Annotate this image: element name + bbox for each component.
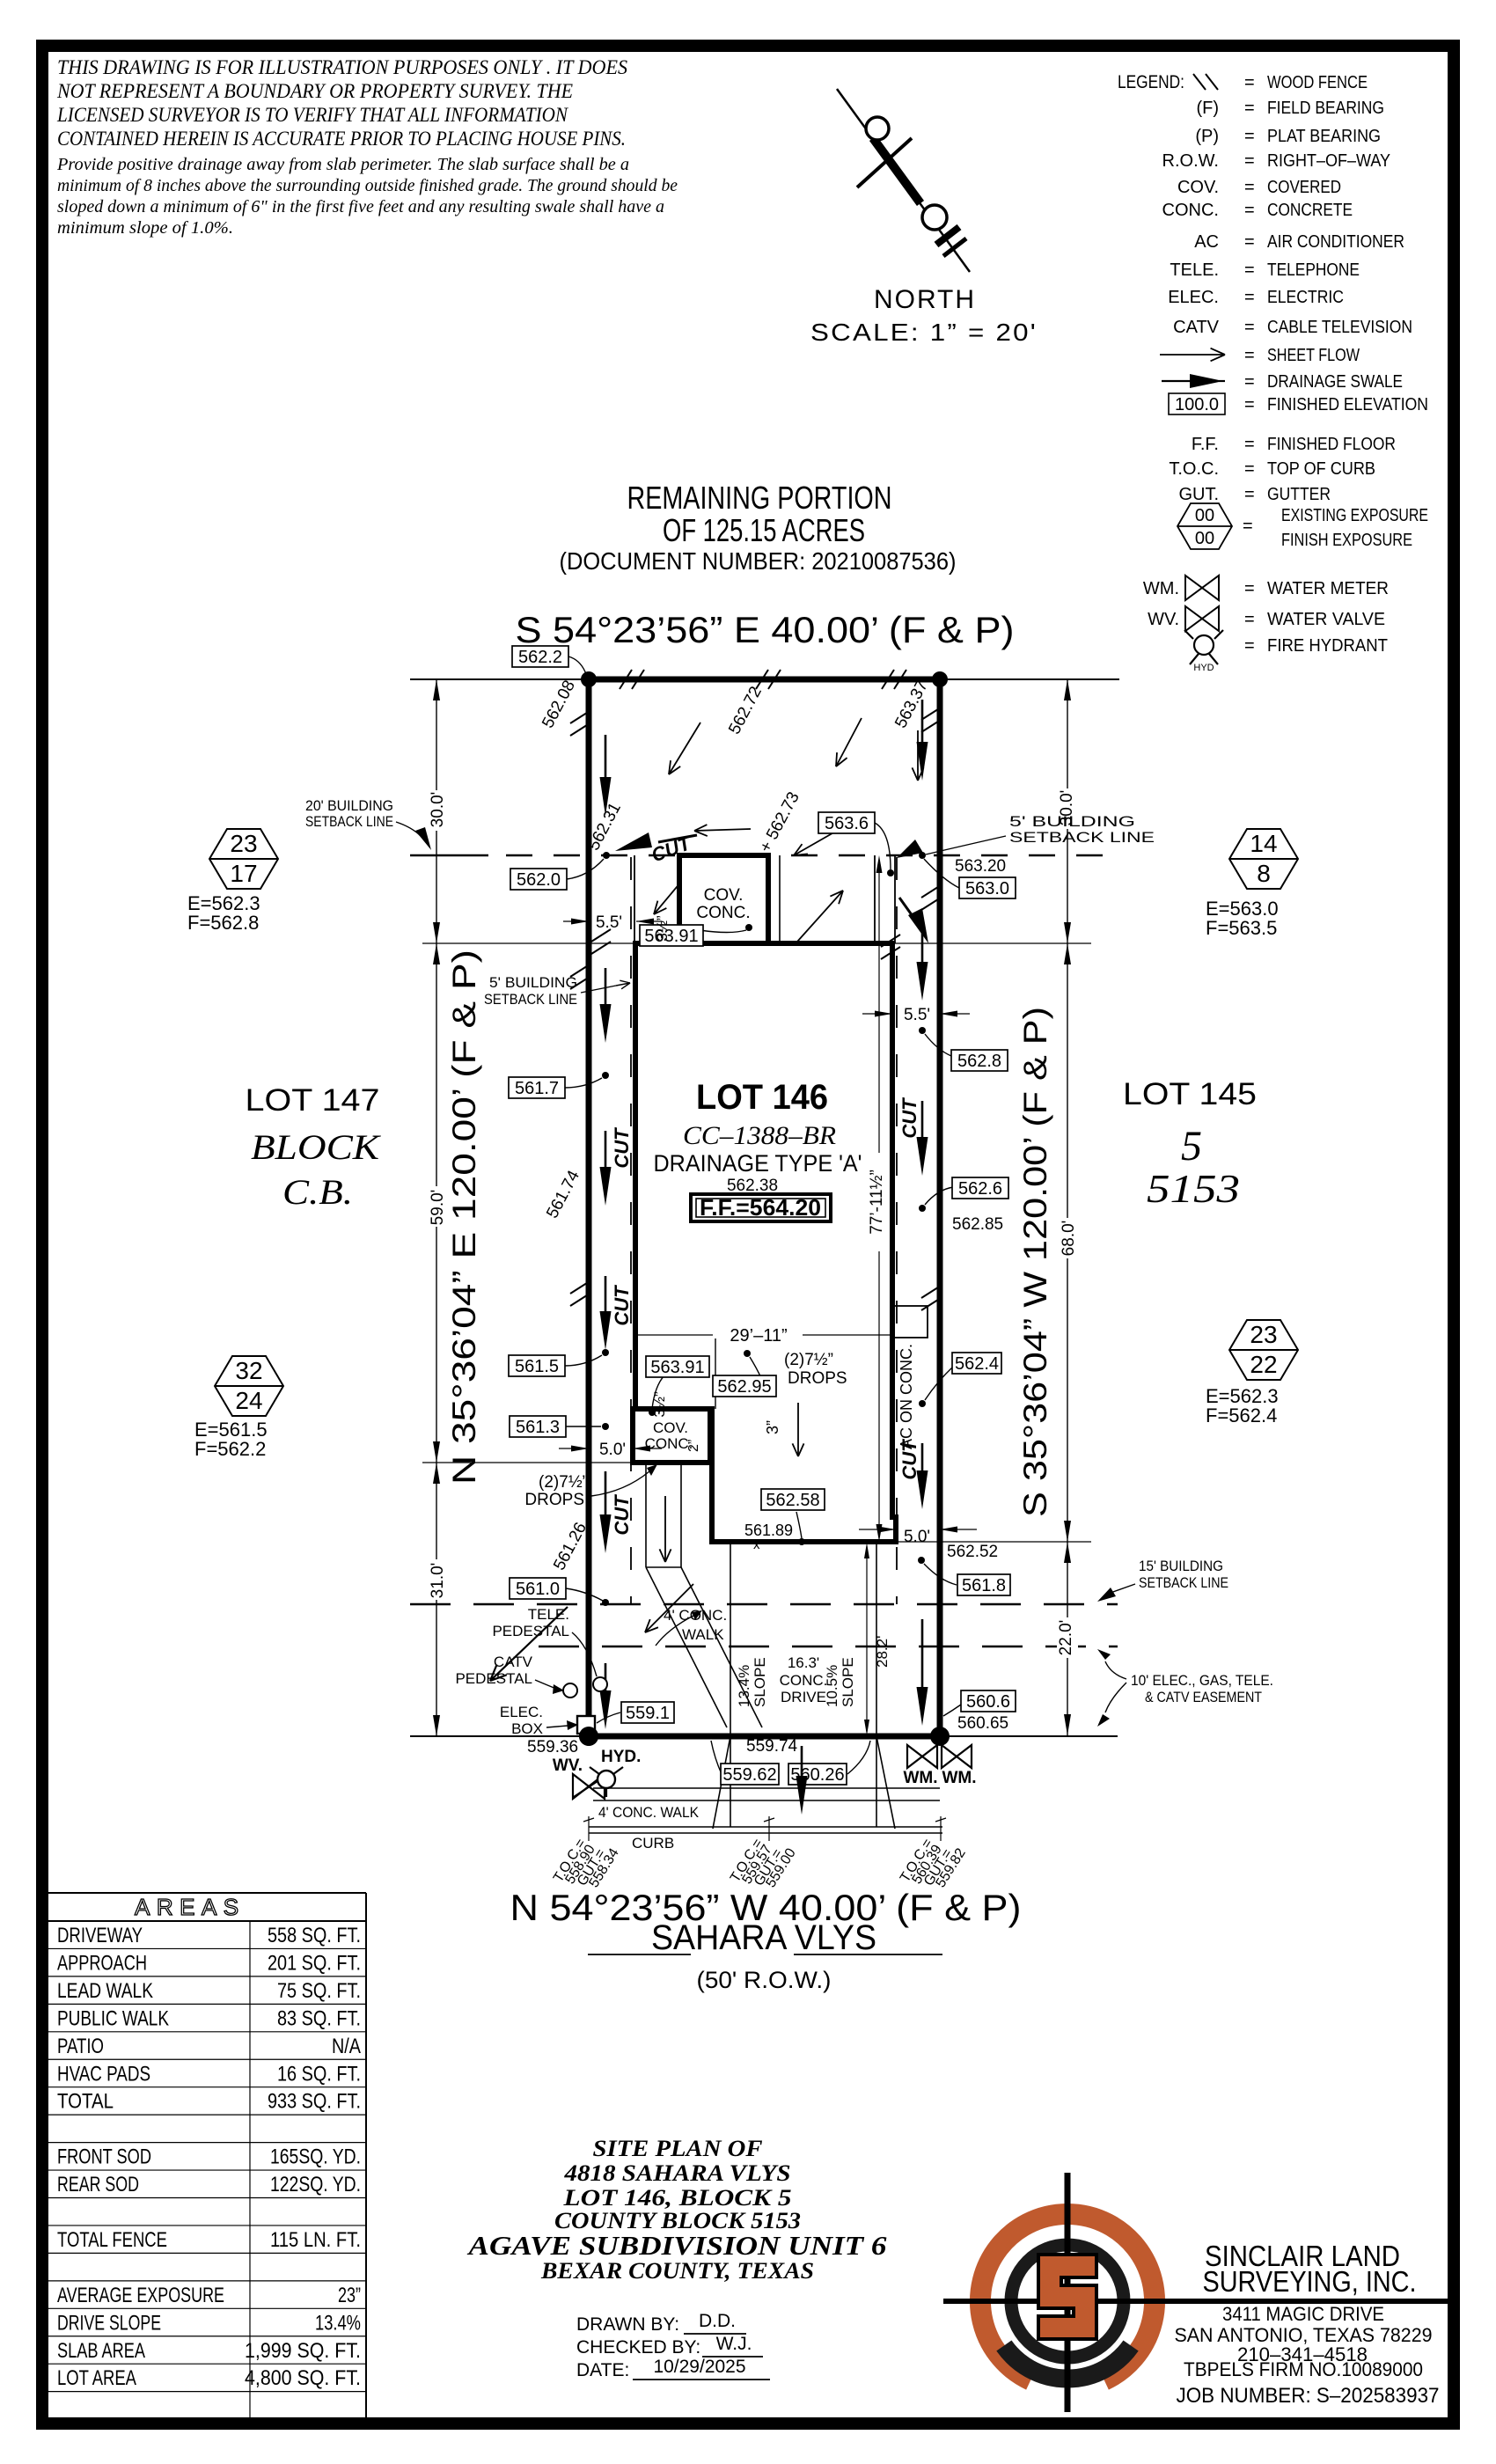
svg-text:10' ELEC., GAS, TELE.: 10' ELEC., GAS, TELE. [1131,1672,1273,1689]
svg-text:(F): (F) [1196,99,1219,118]
svg-text:NORTH: NORTH [874,285,976,314]
svg-text:23: 23 [230,830,257,857]
svg-text:FINISHED FLOOR: FINISHED FLOOR [1267,435,1396,454]
svg-text:CUT: CUT [611,1494,633,1536]
svg-text:563.91: 563.91 [644,927,698,946]
svg-text:561.5: 561.5 [515,1357,559,1376]
svg-text:10/29/2025: 10/29/2025 [653,2357,745,2377]
svg-text:F=563.5: F=563.5 [1206,917,1277,939]
svg-text:2”: 2” [686,1440,701,1452]
svg-text:TELE.: TELE. [528,1606,569,1623]
svg-text:5153: 5153 [1147,1167,1240,1211]
svg-text:REMAINING PORTION: REMAINING PORTION [627,480,892,516]
svg-text:FINISHED ELEVATION: FINISHED ELEVATION [1267,395,1428,414]
svg-text:sloped down a minimum of 6" in: sloped down a minimum of 6" in the first… [57,197,664,216]
svg-text:83 SQ. FT.: 83 SQ. FT. [277,2006,361,2030]
svg-text:SAHARA VLYS: SAHARA VLYS [651,1918,876,1957]
svg-text:SLAB AREA: SLAB AREA [57,2339,145,2363]
svg-text:D.D.: D.D. [699,2311,736,2331]
svg-text:ELECTRIC: ELECTRIC [1267,288,1344,307]
svg-text:PEDESTAL: PEDESTAL [492,1623,569,1639]
svg-text:SCALE: 1” = 20': SCALE: 1” = 20' [810,319,1038,346]
svg-text:SETBACK LINE: SETBACK LINE [1139,1574,1228,1591]
svg-text:=: = [1244,459,1255,479]
svg-text:59.0': 59.0' [429,1190,447,1226]
svg-text:13.4%: 13.4% [315,2311,361,2335]
svg-text:561.8: 561.8 [962,1576,1006,1595]
svg-text:WV.: WV. [553,1756,583,1775]
svg-text:(2)7½”: (2)7½” [784,1351,833,1369]
svg-text:561.3: 561.3 [516,1418,560,1437]
svg-text:TOP OF CURB: TOP OF CURB [1267,459,1375,479]
svg-text:10.5%: 10.5% [824,1665,840,1707]
svg-text:GUT.: GUT. [1178,485,1219,504]
svg-text:AC ON CONC.: AC ON CONC. [898,1344,915,1449]
svg-text:3½”: 3½” [654,915,671,942]
svg-text:5.0': 5.0' [599,1441,626,1459]
svg-text:558 SQ. FT.: 558 SQ. FT. [268,1924,361,1947]
svg-text:562.38: 562.38 [727,1177,778,1195]
svg-text:4,800 SQ. FT.: 4,800 SQ. FT. [245,2366,361,2390]
svg-text:4' CONC. WALK: 4' CONC. WALK [598,1804,700,1821]
svg-text:minimum slope of 1.0%.: minimum slope of 1.0%. [57,218,233,238]
svg-text:=: = [1244,610,1255,629]
svg-text:23”: 23” [338,2284,361,2307]
svg-text:561.89: 561.89 [744,1522,793,1539]
svg-text:BOX: BOX [511,1720,543,1737]
svg-text:DATE:: DATE: [576,2360,629,2380]
svg-text:1,999 SQ. FT.: 1,999 SQ. FT. [245,2339,361,2363]
svg-text:RIGHT–OF–WAY: RIGHT–OF–WAY [1267,151,1390,171]
svg-text:F.F.=564.20: F.F.=564.20 [700,1194,821,1221]
svg-text:F.F.: F.F. [1192,435,1219,454]
svg-text:=: = [1244,485,1255,504]
svg-text:=: = [1244,127,1255,146]
svg-text:115 LN. FT.: 115 LN. FT. [270,2228,361,2252]
svg-text:22.0': 22.0' [1057,1620,1075,1656]
svg-text:562.95: 562.95 [717,1377,771,1397]
svg-text:=: = [1244,178,1255,197]
svg-text:5.0': 5.0' [904,1528,930,1546]
svg-text:THIS DRAWING IS FOR ILLUSTRATI: THIS DRAWING IS FOR ILLUSTRATION PURPOSE… [57,56,627,78]
svg-text:CUT: CUT [898,1097,920,1139]
svg-text:LICENSED SURVEYOR IS TO VERIFY: LICENSED SURVEYOR IS TO VERIFY THAT ALL … [56,104,568,126]
svg-text:562.85: 562.85 [952,1215,1003,1234]
svg-text:SHEET FLOW: SHEET FLOW [1267,346,1360,365]
svg-text:C.B.: C.B. [282,1172,353,1212]
svg-text:FRONT SOD: FRONT SOD [57,2145,151,2169]
svg-text:201 SQ. FT.: 201 SQ. FT. [268,1951,361,1975]
svg-text:WATER METER: WATER METER [1267,579,1389,598]
svg-text:559.36: 559.36 [527,1738,578,1756]
svg-text:3411 MAGIC DRIVE: 3411 MAGIC DRIVE [1222,2303,1384,2325]
svg-text:DRIVE SLOPE: DRIVE SLOPE [57,2311,161,2335]
svg-text:563.20: 563.20 [955,857,1006,876]
svg-text:5' BUILDING: 5' BUILDING [1009,813,1135,830]
svg-text:LEAD WALK: LEAD WALK [57,1979,153,2003]
svg-text:DRIVE: DRIVE [781,1689,826,1705]
svg-text:TOTAL: TOTAL [57,2090,114,2114]
svg-text:=: = [1244,435,1255,454]
svg-text:S 54°23’56” E 40.00’ (F & P): S 54°23’56” E 40.00’ (F & P) [516,609,1015,650]
svg-text:LOT AREA: LOT AREA [57,2366,136,2390]
svg-text:=: = [1244,372,1255,392]
svg-text:PUBLIC WALK: PUBLIC WALK [57,2006,169,2030]
svg-text:NOT REPRESENT A BOUNDARY OR PR: NOT REPRESENT A BOUNDARY OR PROPERTY SUR… [56,80,573,102]
svg-text:DRAWN BY:: DRAWN BY: [576,2314,679,2335]
svg-text:562.58: 562.58 [766,1491,819,1510]
svg-text:LOT 145: LOT 145 [1123,1077,1257,1111]
svg-text:SITE PLAN OF: SITE PLAN OF [593,2136,763,2161]
svg-text:16.3': 16.3' [788,1654,819,1671]
svg-text:DRIVEWAY: DRIVEWAY [57,1924,143,1947]
svg-text:=: = [1244,318,1255,337]
svg-text:=: = [1244,346,1255,365]
svg-text:SURVEYING, INC.: SURVEYING, INC. [1203,2265,1417,2298]
svg-text:AVERAGE EXPOSURE: AVERAGE EXPOSURE [57,2284,224,2307]
svg-text:560.6: 560.6 [966,1692,1010,1712]
svg-text:CONC.: CONC. [1162,201,1219,220]
svg-text:WALK: WALK [682,1626,724,1643]
svg-text:77’‑11½”: 77’‑11½” [868,1170,886,1235]
svg-text:FINISH EXPOSURE: FINISH EXPOSURE [1281,531,1412,550]
svg-text:F=562.8: F=562.8 [187,912,259,934]
svg-text:LOT 146, BLOCK 5: LOT 146, BLOCK 5 [562,2185,791,2211]
svg-text:JOB NUMBER: S–202583937: JOB NUMBER: S–202583937 [1177,2384,1440,2408]
svg-text:BLOCK: BLOCK [251,1127,382,1167]
svg-text:20' BUILDING: 20' BUILDING [305,797,393,814]
svg-text:562.4: 562.4 [955,1354,999,1374]
svg-text:APPROACH: APPROACH [57,1951,147,1975]
svg-text:22: 22 [1250,1351,1277,1378]
svg-text:5' BUILDING: 5' BUILDING [489,974,577,991]
svg-text:SETBACK LINE: SETBACK LINE [484,991,577,1008]
svg-text:559.74: 559.74 [746,1737,798,1756]
svg-text:75 SQ. FT.: 75 SQ. FT. [277,1979,361,2003]
svg-text:BEXAR COUNTY, TEXAS: BEXAR COUNTY, TEXAS [540,2258,814,2284]
svg-text:=: = [1244,636,1255,656]
svg-text:562.2: 562.2 [518,648,562,667]
svg-text:8: 8 [1257,860,1271,887]
svg-text:23: 23 [1250,1321,1277,1348]
svg-text:CONC.: CONC. [780,1672,828,1689]
svg-text:=: = [1244,232,1255,252]
svg-text:28.2': 28.2' [874,1636,891,1668]
svg-text:=: = [1244,73,1255,92]
svg-text:5: 5 [1181,1123,1202,1170]
svg-text:3”: 3” [764,1420,781,1434]
svg-text:LOT 146: LOT 146 [696,1078,828,1117]
svg-text:16 SQ. FT.: 16 SQ. FT. [277,2062,361,2086]
svg-text:562.6: 562.6 [958,1179,1002,1199]
svg-text:DROPS: DROPS [788,1369,847,1388]
svg-text:563.0: 563.0 [965,879,1009,898]
svg-text:CURB: CURB [632,1835,674,1852]
svg-text:=: = [1244,201,1255,220]
svg-text:TOTAL FENCE: TOTAL FENCE [57,2228,167,2252]
svg-text:SLOPE: SLOPE [840,1657,856,1707]
svg-text:563.91: 563.91 [650,1358,704,1377]
svg-text:CABLE TELEVISION: CABLE TELEVISION [1267,318,1412,337]
svg-text:13.4%: 13.4% [736,1665,752,1707]
svg-text:31.0': 31.0' [429,1563,447,1599]
svg-text:HYD.: HYD. [601,1748,641,1766]
svg-text:ELEC.: ELEC. [500,1704,543,1720]
svg-text:FIELD BEARING: FIELD BEARING [1267,99,1384,118]
svg-text:29’–11”: 29’–11” [730,1326,787,1346]
svg-text:R.O.W.: R.O.W. [1162,151,1219,171]
svg-text:=: = [1244,288,1255,307]
svg-text:14: 14 [1250,830,1277,857]
svg-text:REAR SOD: REAR SOD [57,2173,139,2196]
svg-text:COV.: COV. [653,1419,688,1436]
svg-text:AC: AC [1194,232,1219,252]
svg-text:AREAS: AREAS [135,1894,246,1920]
svg-text:15' BUILDING: 15' BUILDING [1139,1558,1223,1574]
svg-text:DRAINAGE SWALE: DRAINAGE SWALE [1267,372,1403,392]
svg-text:F=562.4: F=562.4 [1206,1404,1277,1426]
svg-text:OF 125.15 ACRES: OF 125.15 ACRES [663,512,865,548]
svg-text:TELE.: TELE. [1170,260,1219,280]
svg-text:WM.: WM. [1143,579,1179,598]
svg-text:30.0': 30.0' [429,792,447,828]
svg-text:& CATV EASEMENT: & CATV EASEMENT [1145,1689,1262,1705]
svg-text:PLAT BEARING: PLAT BEARING [1267,127,1381,146]
svg-text:=: = [1244,395,1255,414]
svg-text:F=562.2: F=562.2 [194,1438,266,1460]
svg-text:HVAC PADS: HVAC PADS [57,2062,150,2086]
svg-text:COV.: COV. [704,886,744,905]
svg-text:W.J.: W.J. [716,2334,752,2354]
svg-text:CONC.: CONC. [696,904,750,922]
svg-text:ELEC.: ELEC. [1168,288,1219,307]
svg-text:EXISTING EXPOSURE: EXISTING EXPOSURE [1281,506,1428,525]
svg-text:SLOPE: SLOPE [752,1657,768,1707]
svg-text:S 35°36’04” W 120.00’ (F &: S 35°36’04” W 120.00’ (F & P) [1017,1007,1053,1517]
svg-text:AIR CONDITIONER: AIR CONDITIONER [1267,232,1404,252]
svg-text:SETBACK LINE: SETBACK LINE [1009,829,1155,846]
svg-text:TBPELS FIRM NO.10089000: TBPELS FIRM NO.10089000 [1184,2358,1423,2380]
svg-text:AGAVE SUBDIVISION UNIT 6: AGAVE SUBDIVISION UNIT 6 [466,2230,887,2261]
svg-text:FIRE HYDRANT: FIRE HYDRANT [1267,636,1388,656]
svg-text:N 35°36’04” E 120.00’ (F &: N 35°36’04” E 120.00’ (F & P) [446,950,482,1485]
svg-text:PATIO: PATIO [57,2035,104,2058]
svg-text:WATER VALVE: WATER VALVE [1267,610,1385,629]
svg-text:5.5': 5.5' [904,1006,930,1024]
svg-text:17: 17 [230,860,257,887]
svg-text:TELEPHONE: TELEPHONE [1267,260,1360,280]
svg-text:=: = [1244,260,1255,280]
svg-text:LEGEND:: LEGEND: [1118,72,1184,92]
svg-text:=: = [1244,151,1255,171]
svg-text:00: 00 [1195,529,1214,548]
svg-text:WV.: WV. [1148,610,1179,629]
svg-text:562.8: 562.8 [957,1052,1001,1071]
svg-text:CATV: CATV [1173,318,1220,337]
svg-text:WM.: WM. [903,1769,937,1787]
svg-text:559.62: 559.62 [722,1765,776,1785]
svg-text:x: x [753,1537,760,1552]
svg-text:=: = [1244,579,1255,598]
svg-text:DROPS: DROPS [524,1491,584,1509]
svg-text:562.52: 562.52 [947,1543,998,1561]
svg-text:165SQ. YD.: 165SQ. YD. [270,2145,361,2169]
svg-text:WM.: WM. [942,1769,976,1787]
svg-text:CONCRETE: CONCRETE [1267,201,1353,220]
svg-text:CHECKED BY:: CHECKED BY: [576,2337,700,2358]
svg-text:Provide positive drainage away: Provide positive drainage away from slab… [56,155,629,174]
svg-text:(DOCUMENT NUMBER: 20210087536): (DOCUMENT NUMBER: 20210087536) [560,547,957,575]
svg-text:24: 24 [235,1387,262,1414]
svg-text:562.0: 562.0 [517,870,561,890]
svg-text:(P): (P) [1195,127,1219,146]
svg-text:CATV: CATV [494,1654,533,1670]
svg-text:LOT 147: LOT 147 [246,1083,380,1118]
svg-text:SETBACK LINE: SETBACK LINE [305,813,393,830]
svg-text:minimum of 8 inches above the: minimum of 8 inches above the surroundin… [57,176,678,195]
svg-text:559.1: 559.1 [626,1704,670,1723]
svg-text:563.6: 563.6 [825,814,869,833]
svg-text:00: 00 [1195,506,1214,525]
svg-text:560.65: 560.65 [957,1714,1008,1733]
svg-text:68.0': 68.0' [1060,1221,1078,1257]
svg-text:GUTTER: GUTTER [1267,485,1331,504]
svg-text:4818 SAHARA VLYS: 4818 SAHARA VLYS [563,2160,790,2186]
svg-text:100.0: 100.0 [1175,395,1219,414]
svg-text:HYD: HYD [1193,663,1214,673]
svg-text:CC–1388–BR: CC–1388–BR [683,1121,836,1150]
svg-text:COVERED: COVERED [1267,178,1341,197]
svg-text:(50' R.O.W.): (50' R.O.W.) [697,1967,832,1993]
svg-text:=: = [1243,517,1253,536]
svg-text:561.7: 561.7 [515,1079,559,1098]
svg-text:DRAINAGE TYPE 'A': DRAINAGE TYPE 'A' [654,1150,862,1177]
svg-text:(2)7½”: (2)7½” [539,1473,588,1492]
svg-text:933 SQ. FT.: 933 SQ. FT. [268,2090,361,2114]
svg-text:5.5': 5.5' [596,913,622,932]
svg-text:122SQ. YD.: 122SQ. YD. [270,2173,361,2196]
svg-text:PEDESTAL: PEDESTAL [455,1670,532,1687]
svg-text:CONTAINED HEREIN IS ACCURATE P: CONTAINED HEREIN IS ACCURATE PRIOR TO PL… [57,128,626,150]
svg-text:N/A: N/A [332,2035,361,2058]
svg-text:COV.: COV. [1177,178,1219,197]
svg-text:561.0: 561.0 [516,1580,560,1599]
svg-text:WOOD FENCE: WOOD FENCE [1267,73,1368,92]
svg-text:=: = [1244,99,1255,118]
svg-text:32: 32 [235,1357,262,1384]
svg-text:T.O.C.: T.O.C. [1169,459,1219,479]
svg-text:CUT: CUT [611,1285,633,1326]
svg-text:CUT: CUT [611,1127,633,1169]
